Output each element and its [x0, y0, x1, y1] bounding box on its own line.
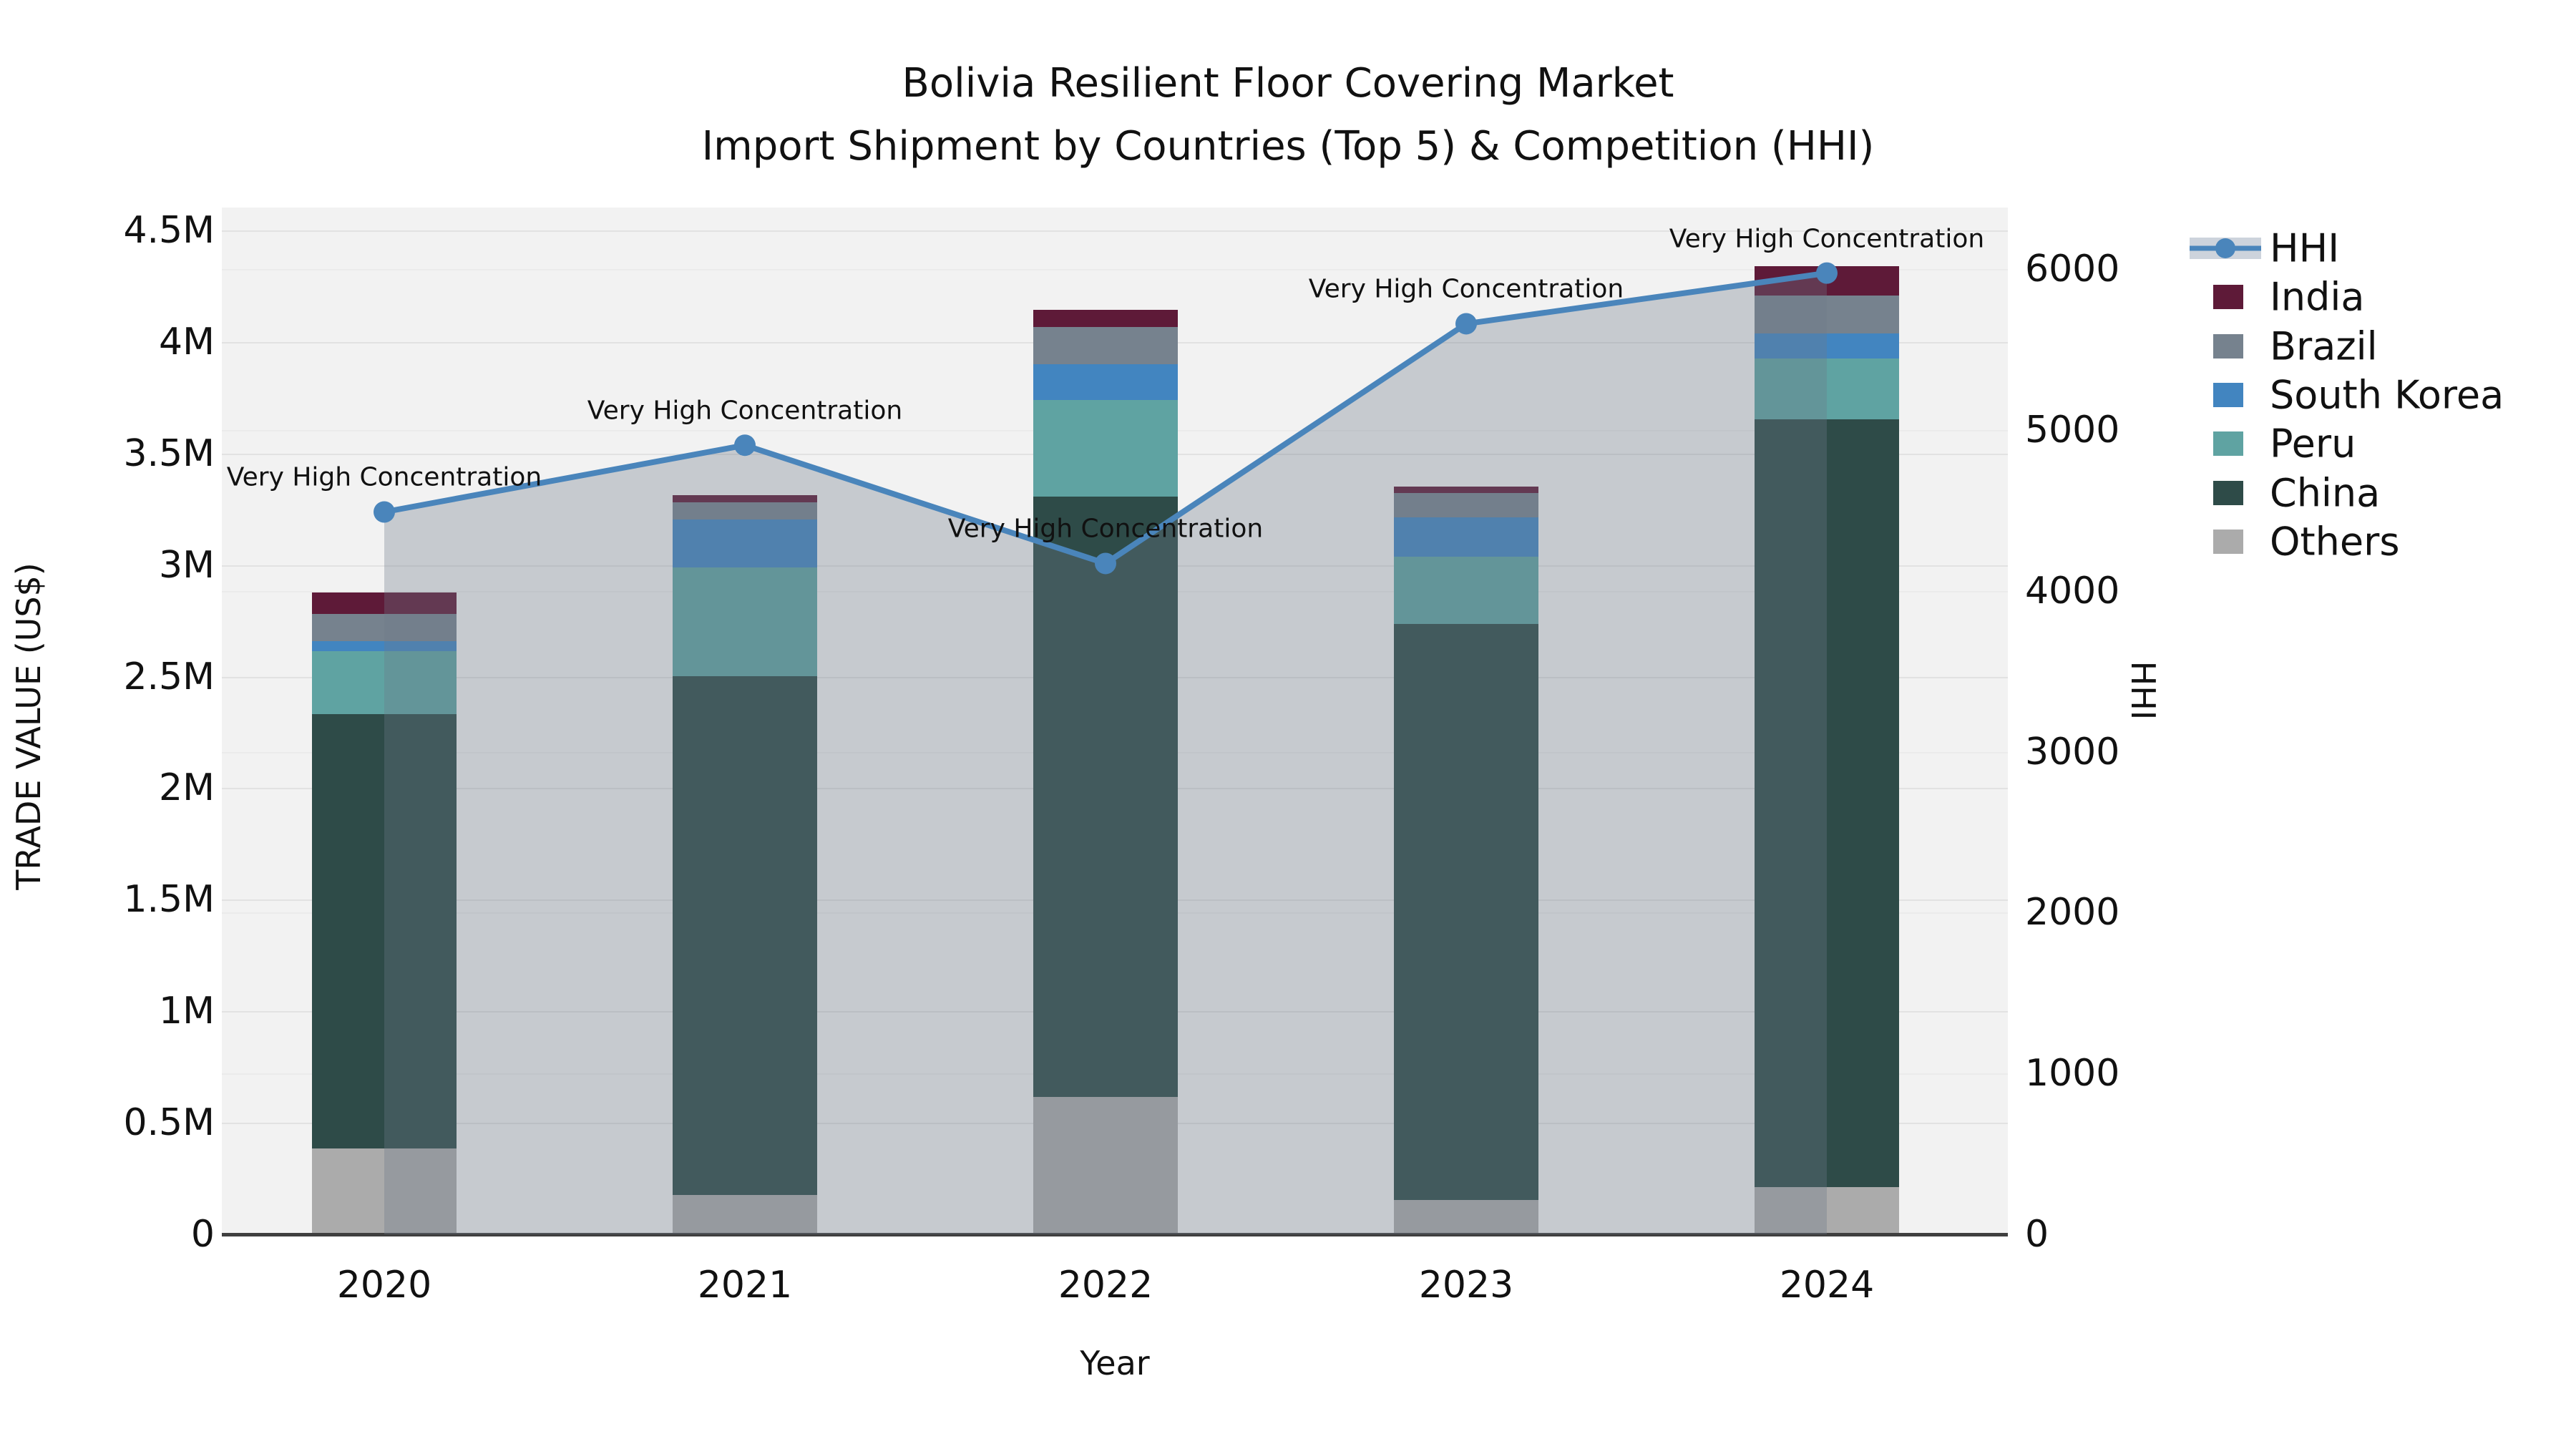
bar-segment-2022-brazil	[1033, 327, 1178, 364]
y-right-tick-3000: 3000	[2025, 732, 2240, 772]
legend-label-china: China	[2270, 470, 2380, 515]
y-right-tick-2000: 2000	[2025, 892, 2240, 932]
legend-label-hhi: HHI	[2270, 226, 2339, 271]
x-axis-label: Year	[1080, 1344, 1149, 1382]
bar-segment-2022-peru	[1033, 400, 1178, 497]
bar-segment-2023-peru	[1394, 557, 1538, 624]
bar-segment-2021-china	[673, 676, 817, 1195]
y-right-tick-0: 0	[2025, 1214, 2240, 1254]
chart-title-line2: Import Shipment by Countries (Top 5) & C…	[0, 123, 2576, 170]
legend-label-brazil: Brazil	[2270, 323, 2378, 369]
chart-title-line1: Bolivia Resilient Floor Covering Market	[0, 60, 2576, 107]
annotation-2020: Very High Concentration	[227, 463, 542, 492]
y-left-tick-1.5M: 1.5M	[43, 879, 215, 919]
annotation-2023: Very High Concentration	[1309, 275, 1624, 304]
x-tick-2024: 2024	[1712, 1265, 1941, 1305]
bar-segment-2024-south-korea	[1755, 333, 1899, 358]
annotation-2022: Very High Concentration	[948, 514, 1263, 544]
bar-segment-2021-india	[673, 495, 817, 502]
annotation-2021: Very High Concentration	[587, 396, 902, 426]
bar-segment-2022-china	[1033, 497, 1178, 1097]
bar-segment-2020-south-korea	[312, 641, 457, 651]
legend-label-south-korea: South Korea	[2270, 372, 2504, 417]
bar-segment-2021-brazil	[673, 502, 817, 519]
bar-segment-2022-others	[1033, 1097, 1178, 1234]
legend-swatch-south-korea	[2213, 383, 2243, 407]
y-left-tick-4M: 4M	[43, 322, 215, 362]
x-tick-2020: 2020	[270, 1265, 499, 1305]
y-left-tick-4.5M: 4.5M	[43, 210, 215, 250]
bar-segment-2021-others	[673, 1195, 817, 1234]
bar-segment-2020-china	[312, 714, 457, 1148]
plot-area	[222, 208, 2008, 1234]
y-left-tick-3.5M: 3.5M	[43, 434, 215, 474]
bar-segment-2021-south-korea	[673, 519, 817, 567]
bar-segment-2020-others	[312, 1148, 457, 1234]
y-left-tick-0: 0	[43, 1214, 215, 1254]
legend-label-peru: Peru	[2270, 421, 2356, 467]
bar-segment-2020-peru	[312, 651, 457, 714]
bar-segment-2020-brazil	[312, 614, 457, 641]
y-axis-label-left: TRADE VALUE (US$)	[9, 562, 48, 889]
annotation-2024: Very High Concentration	[1669, 224, 1984, 253]
legend-swatch-india	[2213, 285, 2243, 309]
bar-segment-2020-india	[312, 592, 457, 614]
y-right-tick-4000: 4000	[2025, 571, 2240, 611]
y-left-tick-2.5M: 2.5M	[43, 657, 215, 697]
y-axis-label-right: HHI	[2124, 661, 2162, 721]
bar-segment-2024-china	[1755, 419, 1899, 1187]
legend-swatch-others	[2213, 530, 2243, 554]
y-right-tick-1000: 1000	[2025, 1053, 2240, 1093]
x-axis-line	[222, 1233, 2008, 1236]
bar-segment-2022-india	[1033, 310, 1178, 327]
bar-segment-2024-peru	[1755, 358, 1899, 419]
bar-segment-2024-india	[1755, 266, 1899, 296]
legend-swatch-peru	[2213, 431, 2243, 456]
x-tick-2021: 2021	[630, 1265, 859, 1305]
x-tick-2022: 2022	[991, 1265, 1220, 1305]
bar-segment-2024-others	[1755, 1187, 1899, 1234]
bar-segment-2023-others	[1394, 1200, 1538, 1234]
bar-segment-2022-south-korea	[1033, 364, 1178, 400]
legend-hhi-marker-icon	[2215, 238, 2235, 258]
legend-label-india: India	[2270, 275, 2365, 320]
y-left-tick-2M: 2M	[43, 768, 215, 808]
bar-segment-2024-brazil	[1755, 296, 1899, 333]
y-right-tick-5000: 5000	[2025, 410, 2240, 450]
bar-segment-2023-india	[1394, 487, 1538, 493]
y-left-tick-1M: 1M	[43, 991, 215, 1031]
y-left-tick-0.5M: 0.5M	[43, 1103, 215, 1143]
bar-segment-2023-china	[1394, 624, 1538, 1200]
legend-swatch-brazil	[2213, 334, 2243, 358]
bar-segment-2023-brazil	[1394, 493, 1538, 517]
bar-segment-2023-south-korea	[1394, 517, 1538, 557]
legend-label-others: Others	[2270, 519, 2399, 564]
y-left-tick-3M: 3M	[43, 545, 215, 585]
bar-segment-2021-peru	[673, 567, 817, 676]
legend-swatch-china	[2213, 481, 2243, 505]
x-tick-2023: 2023	[1352, 1265, 1581, 1305]
gridline-right	[222, 269, 2008, 270]
